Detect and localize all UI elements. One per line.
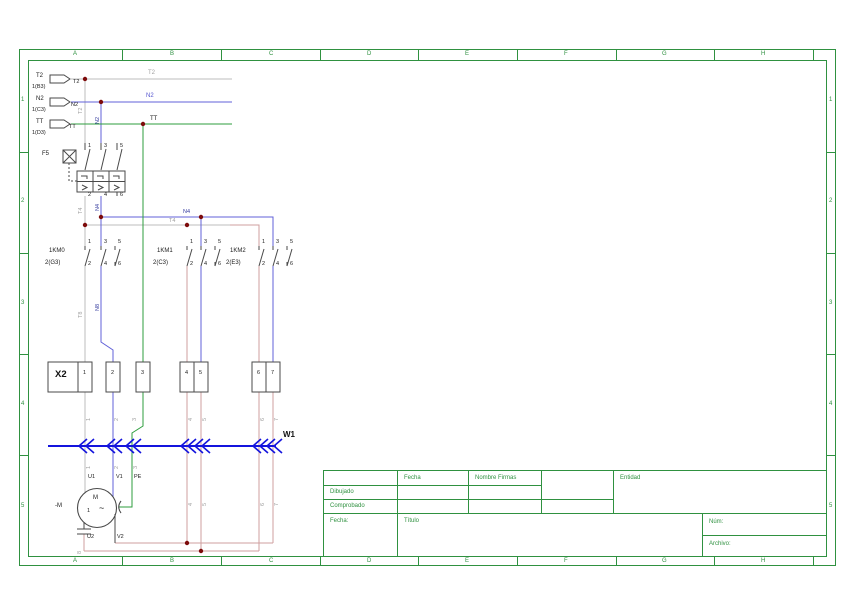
wire-number: 1 <box>87 466 93 469</box>
schematic-sheet: T21(B3)N21(C3)TT1(D3)T2N2TTT2N2TTT2N2F51… <box>0 0 848 599</box>
wire-number: 4 <box>189 503 195 506</box>
terminal-number: 3 <box>141 371 144 377</box>
title-block-titulo: Título <box>404 518 419 524</box>
pole-number: 2 <box>190 262 193 268</box>
motor-ac-symbol: ~ <box>99 504 104 513</box>
pole-number: 3 <box>104 240 107 246</box>
net-label-vertical: T8 <box>79 312 85 318</box>
net-label-n2: N2 <box>146 93 154 99</box>
frame-row-number: 1 <box>21 97 24 103</box>
source-tag-tt: TT <box>36 119 43 125</box>
wire-number: 1 <box>87 418 93 421</box>
frame-column-letter: D <box>367 51 371 57</box>
source-tag-t2: T2 <box>36 73 43 79</box>
frame-column-letter: F <box>564 558 568 564</box>
wire-number: 4 <box>189 418 195 421</box>
frame-column-letter: G <box>662 558 667 564</box>
frame-row-number: 2 <box>21 198 24 204</box>
frame-column-letter: E <box>465 558 469 564</box>
terminal-strip-symbol <box>48 362 280 392</box>
pole-number: 4 <box>204 262 207 268</box>
pole-number: 6 <box>290 262 293 268</box>
frame-column-letter: G <box>662 51 667 57</box>
contactor-tag-1km2: 1KM2 <box>230 248 246 254</box>
frame-column-letter: C <box>269 558 273 564</box>
frame-column-letter: A <box>73 558 77 564</box>
terminal-number: 2 <box>111 371 114 377</box>
motor-terminal-v1: V1 <box>116 475 123 481</box>
pole-number: 4 <box>104 193 107 199</box>
title-block-entidad: Entidad <box>620 475 640 481</box>
motor-letter: M <box>93 495 98 501</box>
wire-label: N2 <box>71 103 78 109</box>
wire-number: 7 <box>275 418 281 421</box>
motor-tag: -M <box>55 503 62 509</box>
wire-blue-neutral <box>71 102 273 498</box>
net-label-tt: TT <box>150 116 157 122</box>
wire-number: 2 <box>115 418 121 421</box>
wire-gray-phase <box>71 79 232 493</box>
title-block-dibujado: Dibujado <box>330 489 354 495</box>
frame-column-letter: A <box>73 51 77 57</box>
frame-column-letter: B <box>170 558 174 564</box>
title-block-archivo: Archivo: <box>709 541 731 547</box>
frame-column-letter: H <box>761 558 765 564</box>
contactor-tag-1km0: 1KM0 <box>49 248 65 254</box>
wire-number: 5 <box>203 418 209 421</box>
pole-number: 6 <box>118 262 121 268</box>
pole-number: 1 <box>88 240 91 246</box>
motor-phase-number: 1 <box>87 509 90 515</box>
net-label-vertical: T4 <box>79 208 85 214</box>
breaker-f5-symbol <box>63 143 125 196</box>
frame-column-letter: F <box>564 51 568 57</box>
terminal-strip-tag: X2 <box>55 370 67 380</box>
pole-number: 5 <box>218 240 221 246</box>
net-label-vertical: N4 <box>96 204 102 211</box>
wire-number: 3 <box>134 466 140 469</box>
pole-number: 6 <box>120 193 123 199</box>
title-block-num: Núm: <box>709 519 723 525</box>
wire-label: TT <box>69 125 76 131</box>
terminal-number: 1 <box>83 371 86 377</box>
terminal-number: 5 <box>199 371 202 377</box>
contactor-tag-1km1: 1KM1 <box>157 248 173 254</box>
wire-number: 6 <box>261 418 267 421</box>
net-label-t2: T2 <box>148 70 155 76</box>
terminal-number: 6 <box>257 371 260 377</box>
source-ref-tt: 1(D3) <box>32 131 46 137</box>
net-label-t4: T4 <box>169 219 175 225</box>
wire-number: 5 <box>203 503 209 506</box>
frame-row-number: 2 <box>829 198 832 204</box>
title-block-comprobado: Comprobado <box>330 503 365 509</box>
frame-row-number: 5 <box>21 503 24 509</box>
pole-number: 5 <box>120 144 123 150</box>
source-tag-n2: N2 <box>36 96 44 102</box>
motor-terminal-u1: U1 <box>88 475 95 481</box>
wire-number: 3 <box>133 418 139 421</box>
wire-number: 2 <box>115 466 121 469</box>
pole-number: 3 <box>104 144 107 150</box>
frame-column-letter: B <box>170 51 174 57</box>
pole-number: 1 <box>262 240 265 246</box>
motor-terminal-v2: V2 <box>117 535 124 541</box>
frame-row-number: 3 <box>21 300 24 306</box>
wire-label: T2 <box>73 80 79 86</box>
source-ref-t2: 1(B3) <box>32 85 45 91</box>
contactor-symbols <box>85 246 292 266</box>
pole-number: 1 <box>190 240 193 246</box>
frame-row-number: 3 <box>829 300 832 306</box>
pole-number: 6 <box>218 262 221 268</box>
title-block-fecha-header: Fecha <box>404 475 421 481</box>
source-flags <box>50 75 70 128</box>
schematic-drawing <box>0 0 848 599</box>
frame-row-number: 4 <box>829 401 832 407</box>
pole-number: 3 <box>204 240 207 246</box>
pole-number: 5 <box>118 240 121 246</box>
frame-column-letter: D <box>367 558 371 564</box>
frame-column-letter: E <box>465 51 469 57</box>
frame-row-number: 1 <box>829 97 832 103</box>
contactor-ref-1km2: 2(E3) <box>226 260 241 266</box>
wire-number: 6 <box>261 503 267 506</box>
net-label-vertical: T2 <box>79 108 85 114</box>
title-block-grid <box>324 471 827 557</box>
frame-row-number: 4 <box>21 401 24 407</box>
pole-number: 2 <box>262 262 265 268</box>
net-label-vertical: N8 <box>96 304 102 311</box>
pole-number: 2 <box>88 193 91 199</box>
terminal-number: 7 <box>271 371 274 377</box>
pole-number: 1 <box>88 144 91 150</box>
title-block-fecha: Fecha: <box>330 518 348 524</box>
pole-number: 3 <box>276 240 279 246</box>
pole-number: 4 <box>276 262 279 268</box>
frame-row-number: 5 <box>829 503 832 509</box>
wire-number: 8 <box>78 551 84 554</box>
frame-column-letter: C <box>269 51 273 57</box>
breaker-tag: F5 <box>42 151 49 157</box>
wire-number: 7 <box>275 503 281 506</box>
motor-terminal-pe: PE <box>134 475 141 481</box>
pole-number: 5 <box>290 240 293 246</box>
contactor-ref-1km1: 2(C3) <box>153 260 168 266</box>
net-label-vertical: N2 <box>96 117 102 124</box>
motor-terminal-u2: U2 <box>87 535 94 541</box>
source-ref-n2: 1(C3) <box>32 108 46 114</box>
cable-w1-symbol <box>48 439 282 453</box>
sheet-frame <box>20 50 836 566</box>
contactor-ref-1km0: 2(G3) <box>45 260 60 266</box>
pole-number: 4 <box>104 262 107 268</box>
net-label-n4: N4 <box>183 210 190 216</box>
frame-column-letter: H <box>761 51 765 57</box>
terminal-number: 4 <box>185 371 188 377</box>
cable-tag: W1 <box>283 431 295 439</box>
title-block-nombre-firmas: Nombre Firmas <box>475 475 516 481</box>
pole-number: 2 <box>88 262 91 268</box>
